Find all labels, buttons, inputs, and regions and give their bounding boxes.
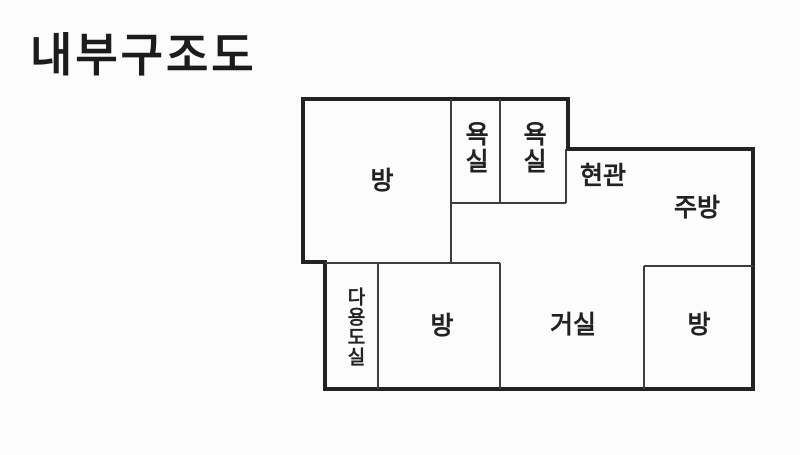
room-label-bathroom-2: 욕실	[520, 121, 546, 175]
room-label-entrance: 현관	[580, 163, 626, 189]
room-label-utility-room: 다용도실	[344, 287, 364, 367]
room-label-bathroom-1: 욕실	[462, 121, 488, 175]
floorplan-walls	[0, 0, 800, 455]
room-label-bottom-right: 방	[687, 312, 710, 338]
room-label-kitchen: 주방	[674, 195, 720, 221]
floorplan-page: 내부구조도 방 욕실 욕실 현관 주방 다용도실	[0, 0, 800, 455]
room-label-living-room: 거실	[550, 312, 596, 338]
room-label-top-left: 방	[370, 168, 393, 194]
room-label-middle: 방	[430, 313, 453, 339]
